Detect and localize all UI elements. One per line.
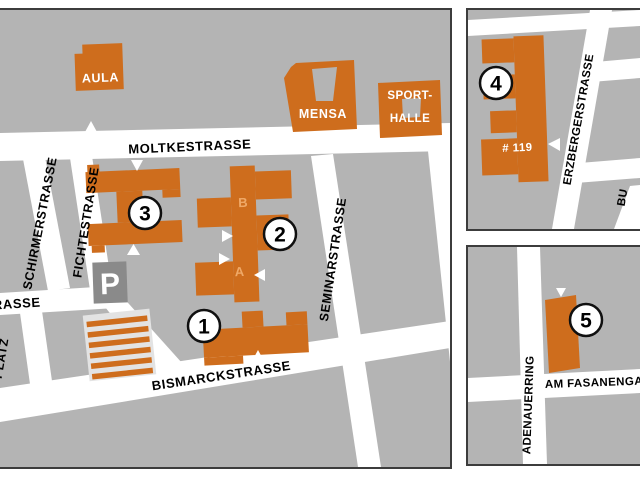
inset-top-map: # 119 4 ERZBERGERSTRASSE BU [468,10,640,229]
wing-a-label: A [234,264,245,279]
main-map: AULA MENSA SPORT- HALLE B A [0,10,450,467]
main-map-panel: AULA MENSA SPORT- HALLE B A [0,8,452,469]
sporthalle-label-2: HALLE [390,113,430,125]
house-number-label: # 119 [502,142,533,155]
inset-bottom-map: 5 ADENAUERRING AM FASANENGA [468,247,640,464]
marker-5: 5 [570,304,602,336]
inset-top-panel: # 119 4 ERZBERGERSTRASSE BU [466,8,640,231]
parking-block: P [92,261,127,303]
marker-4: 4 [480,67,512,99]
building-5 [545,295,580,373]
parking-icon: P [100,268,121,302]
svg-text:1: 1 [198,316,210,339]
svg-text:2: 2 [274,224,286,247]
wing-b-label: B [238,195,248,210]
inset-bottom-panel: 5 ADENAUERRING AM FASANENGA [466,245,640,466]
sporthalle-label-1: SPORT- [387,90,432,102]
aula-label: AULA [82,70,120,85]
striped-building [83,309,157,382]
marker-3: 3 [129,197,161,229]
marker-2: 2 [264,218,296,250]
mensa-label: MENSA [299,107,347,121]
svg-text:5: 5 [580,310,592,333]
label-strasse-partial: RASSE [0,295,41,313]
marker-1: 1 [188,310,220,342]
svg-text:4: 4 [490,73,502,96]
svg-text:3: 3 [139,203,151,226]
